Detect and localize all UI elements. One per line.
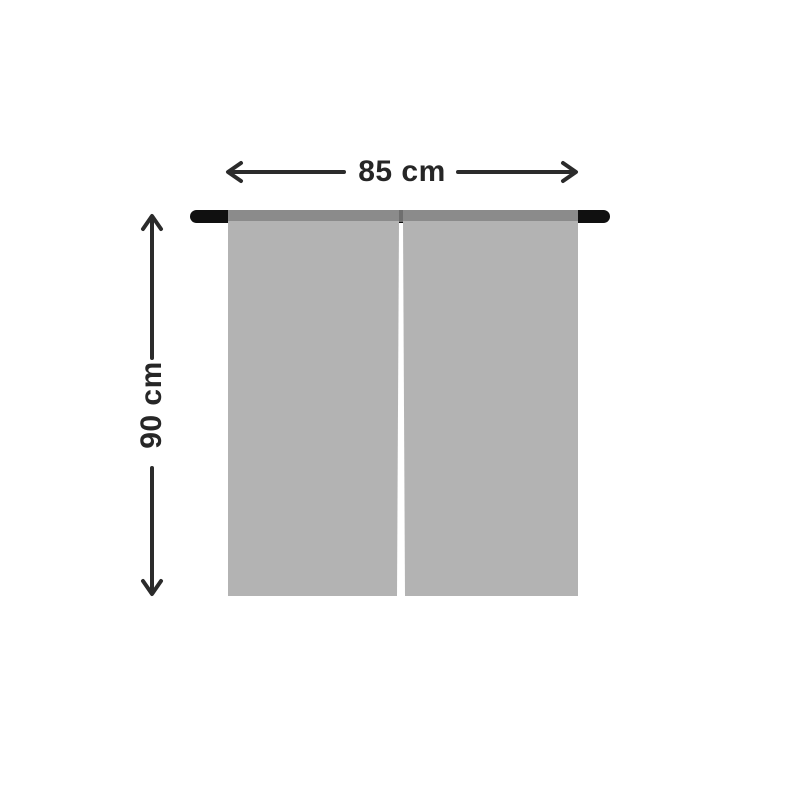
dimension-diagram-canvas: 85 cm 90 cm: [0, 0, 800, 800]
curtain-panel-left: [228, 221, 399, 596]
curtain: [228, 210, 578, 596]
height-dimension: 90 cm: [136, 212, 168, 598]
height-dimension-label: 90 cm: [137, 361, 167, 449]
width-dimension-label: 85 cm: [358, 157, 446, 187]
rod-pocket-band: [228, 210, 578, 222]
band-center-notch: [399, 210, 403, 222]
width-dimension: 85 cm: [224, 156, 580, 188]
curtain-panel-right: [403, 221, 578, 596]
